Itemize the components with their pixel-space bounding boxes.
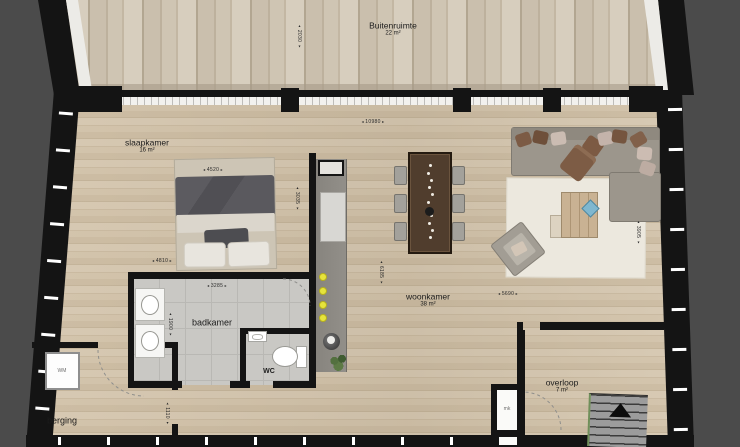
dim-badkamer-depth: 1900 [167, 311, 173, 337]
room-label-berging: berging [47, 416, 77, 427]
sofa-pillow [550, 131, 567, 146]
table-bowl [425, 207, 434, 216]
dim-berging-passage: 1110 [164, 400, 170, 425]
dining-chair [394, 194, 407, 213]
extractor-hood [318, 160, 344, 176]
dining-chair [452, 194, 465, 213]
bathroom-sink [135, 288, 165, 321]
toilet [270, 344, 308, 370]
overloop-wall-top [517, 322, 523, 330]
pier [281, 88, 299, 112]
toilet-bowl [272, 346, 298, 367]
wall-threshold [78, 90, 660, 98]
stairs [587, 393, 648, 447]
dim-woonkamer-depth: 3905 [635, 219, 641, 245]
wc-hand-basin [248, 331, 267, 342]
sofa-pillow [636, 146, 652, 160]
wall-left [26, 90, 80, 447]
floor-plan: Buitenruimte 22 m² slaapkamer 16 m² badk… [0, 0, 740, 447]
shaft-box [499, 437, 517, 445]
bed-pillow-right [227, 241, 270, 268]
basin [252, 334, 263, 340]
sink-basin [141, 295, 159, 315]
armchair-base [490, 221, 546, 277]
badkamer-wall-left [128, 272, 134, 388]
dim-slaapkamer-depth: 3035 [294, 185, 300, 211]
dim-badkamer-width: 3285 [207, 283, 227, 289]
washing-machine-label: WM [58, 368, 67, 374]
dining-chair [394, 166, 407, 185]
plant [329, 354, 347, 371]
dim-deck-depth: 2030 [296, 23, 302, 49]
armchair [492, 221, 544, 277]
kitchen-sink [323, 333, 340, 350]
stairs-up-arrow-icon [609, 403, 631, 418]
pier [629, 86, 663, 112]
wc-wall-left [240, 328, 246, 388]
room-label-wc: WC [263, 368, 275, 376]
room-label-overloop: overloop 7 m² [546, 377, 579, 394]
meter-closet-label: mk [504, 406, 511, 412]
sofa-pillow [532, 130, 549, 146]
bed-pillow-left [184, 242, 226, 267]
bathroom-sink [135, 324, 165, 358]
dim-main-width: 10980 [362, 119, 385, 125]
pier [453, 88, 471, 112]
kitchen-wall [309, 153, 316, 388]
burner-knob [319, 287, 327, 295]
room-label-badkamer: badkamer [192, 318, 232, 329]
sofa-pillow [611, 129, 628, 144]
room-label-buitenruimte: Buitenruimte 22 m² [369, 20, 417, 37]
sink-basin [141, 331, 159, 351]
overloop-wall-top [540, 322, 664, 330]
dining-table [408, 152, 452, 254]
burner-knob [319, 314, 327, 322]
dim-slaapkamer-width: 4810 [152, 258, 172, 264]
kitchen-worktop [320, 192, 346, 242]
sofa-chaise [609, 172, 661, 222]
badkamer-wall-bottom [273, 381, 315, 388]
bed [174, 157, 279, 273]
table-centerpiece [429, 164, 432, 167]
sink-highlight [327, 336, 335, 344]
room-label-slaapkamer: slaapkamer 16 m² [125, 137, 169, 154]
berging-wall-top [32, 342, 98, 348]
dim-kitchen-wall: 6185 [378, 259, 384, 285]
badkamer-door-swing [283, 279, 310, 306]
room-label-woonkamer: woonkamer 38 m² [406, 291, 450, 308]
burner-knob [319, 273, 327, 281]
berging-wall-right [172, 424, 178, 447]
dining-chair [452, 222, 465, 241]
overloop-door-swing [523, 392, 561, 430]
badkamer-wall-top [128, 272, 315, 279]
dim-bed-zone-width: 4520 [203, 167, 223, 173]
pier [74, 86, 122, 112]
dim-woonkamer-width: 5690 [498, 291, 518, 297]
bed-duvet [175, 175, 275, 217]
burner-knob [319, 301, 327, 309]
berging-wall-right [172, 342, 178, 390]
dining-chair [394, 222, 407, 241]
deck-edge-beam [80, 84, 658, 90]
pier [543, 88, 561, 112]
dining-chair [452, 166, 465, 185]
